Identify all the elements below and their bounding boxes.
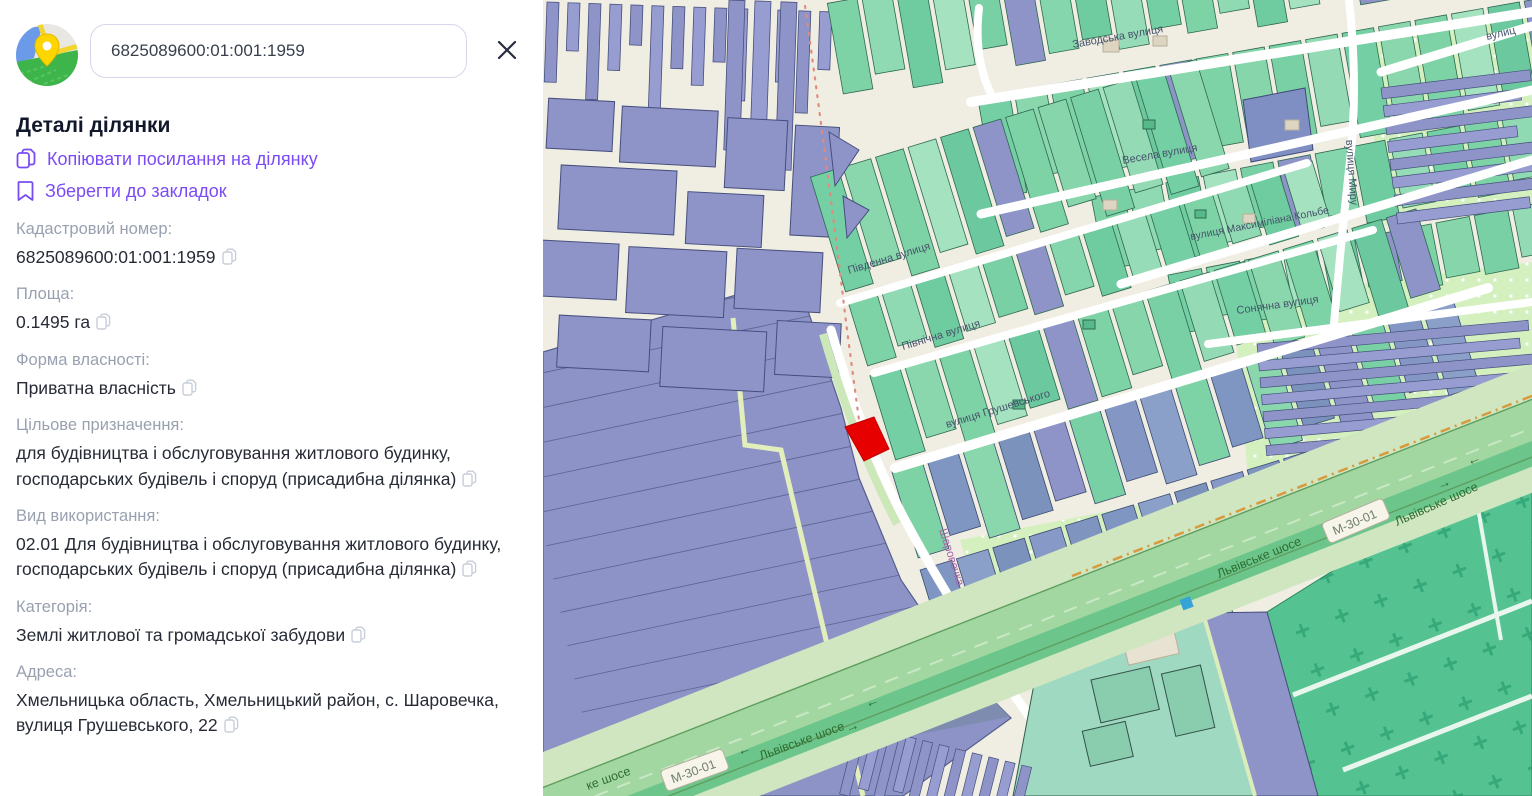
parcel-details-panel: Деталі ділянки Копіювати посилання на ді… [0,0,543,796]
copy-parcel-link-label: Копіювати посилання на ділянку [47,149,318,170]
save-bookmark-label: Зберегти до закладок [45,181,227,202]
close-panel-button[interactable] [491,34,523,66]
field-purpose: Цільове призначення: для будівництва і о… [16,416,525,492]
save-bookmark-button[interactable]: Зберегти до закладок [16,180,525,202]
cadastral-map[interactable]: ке шосе М-30-01 Львівське шосе Львівське… [543,0,1532,796]
close-icon [495,38,519,62]
copy-parcel-link-button[interactable]: Копіювати посилання на ділянку [16,148,525,170]
fields-list: Кадастровий номер: 6825089600:01:001:195… [16,220,525,739]
copy-value-icon[interactable] [182,379,197,396]
copy-value-icon[interactable] [224,716,239,733]
copy-value-icon[interactable] [96,313,111,330]
copy-value-icon[interactable] [462,560,477,577]
field-use-type: Вид використання: 02.01 Для будівництва … [16,507,525,583]
field-ownership: Форма власності: Приватна власність [16,351,525,401]
search-input[interactable] [90,24,467,78]
copy-value-icon[interactable] [351,626,366,643]
field-area: Площа: 0.1495 га [16,285,525,335]
field-address: Адреса: Хмельницька область, Хмельницьки… [16,663,525,739]
bookmark-icon [16,180,34,202]
page-title: Деталі ділянки [16,114,525,138]
copy-icon [16,148,36,170]
copy-value-icon[interactable] [462,470,477,487]
copy-value-icon[interactable] [222,248,237,265]
app-logo-icon[interactable] [16,24,78,86]
field-category: Категорія: Землі житлової та громадської… [16,598,525,648]
field-cadastral-number: Кадастровий номер: 6825089600:01:001:195… [16,220,525,270]
topbar [16,24,525,86]
